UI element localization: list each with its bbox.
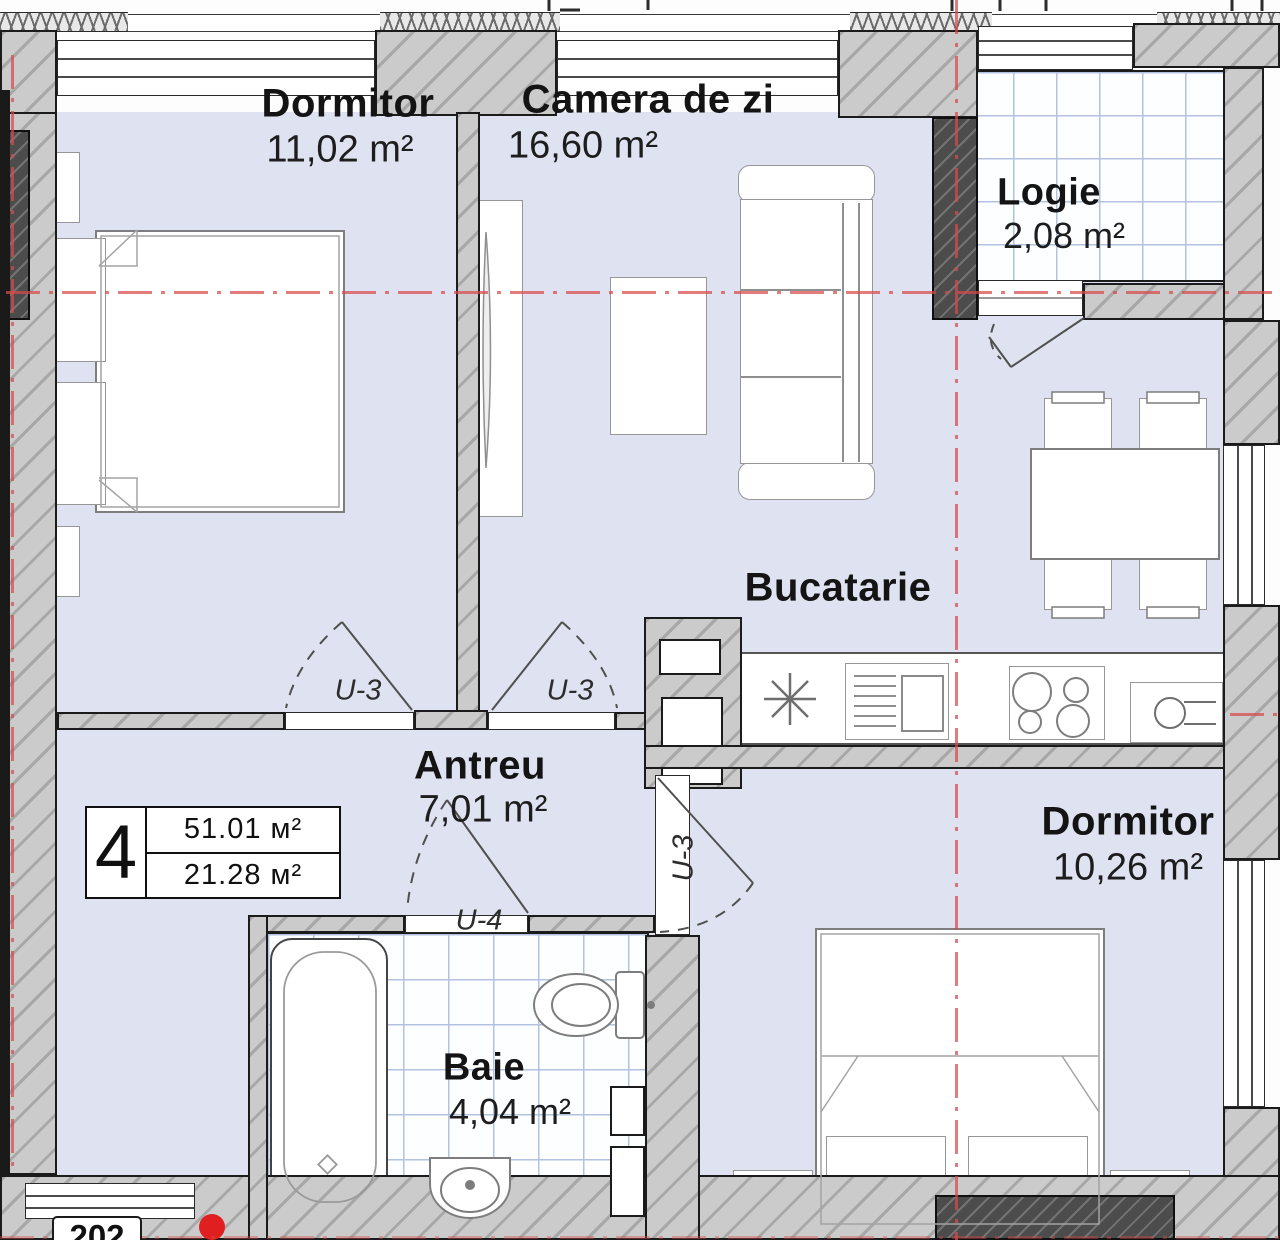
sofa-body: [740, 199, 873, 464]
wall-under-counter: [644, 745, 1225, 769]
wall-partition: [57, 712, 285, 730]
room-label-dormitor1: Dormitor: [262, 82, 435, 127]
cooktop: [1009, 666, 1105, 740]
wall-niche: [610, 1086, 645, 1136]
bathroom-wall: [528, 915, 655, 933]
room-label-baie: Baie: [443, 1047, 525, 1090]
wall-partition: [615, 712, 647, 730]
insulation-hatch: [850, 12, 992, 32]
sink-cabinet: [1130, 682, 1223, 743]
wall-niche: [610, 1146, 645, 1217]
unit-total-area: 51.01 м²: [147, 808, 339, 854]
bed-double-1: [95, 230, 345, 513]
balcony-door-threshold: [978, 280, 1083, 316]
plan-edge: [0, 90, 10, 1240]
window: [1223, 860, 1265, 1107]
floor-plan: Dormitor 11,02 m² Camera de zi 16,60 m² …: [0, 0, 1280, 1240]
wall-exterior-right: [1223, 67, 1264, 320]
chair: [1139, 558, 1207, 610]
shaft-niche: [659, 639, 721, 675]
dining-table: [1030, 448, 1220, 560]
door-label-u3-bedroom2: U-3: [668, 835, 701, 882]
insulation-hatch: [0, 12, 128, 32]
room-label-dormitor2: Dormitor: [1042, 800, 1215, 845]
door-opening-bedroom1: [285, 712, 414, 730]
adjacent-unit-label: 202: [52, 1216, 142, 1240]
wall-partition: [645, 935, 700, 1240]
kitchen-appliance: [845, 663, 949, 740]
unit-number: 4: [87, 808, 145, 897]
sofa-armrest: [738, 462, 875, 500]
chair: [1044, 398, 1112, 450]
insulation-hatch: [380, 12, 560, 32]
room-area-camera: 16,60 m²: [508, 125, 658, 168]
window: [25, 1183, 195, 1219]
loggia-window: [978, 26, 1133, 70]
wall-pier: [1133, 23, 1280, 68]
door-label-u3-bedroom1: U-3: [335, 675, 382, 708]
room-label-logie: Logie: [997, 172, 1101, 215]
wall-pier-dark: [935, 1195, 1175, 1240]
door-label-u3-living: U-3: [547, 675, 594, 708]
room-area-logie: 2,08 m²: [1003, 215, 1125, 257]
room-area-baie: 4,04 m²: [449, 1091, 571, 1133]
wall-pier-dark: [932, 117, 978, 320]
room-label-antreu: Antreu: [414, 744, 546, 789]
room-label-camera: Camera de zi: [522, 78, 775, 123]
coffee-table: [610, 277, 707, 435]
room-area-antreu: 7,01 m²: [419, 789, 548, 832]
chair: [1044, 558, 1112, 610]
tv-cabinet: [477, 200, 523, 517]
sofa-armrest: [738, 165, 875, 203]
window: [1223, 445, 1265, 605]
wall-exterior-right: [1223, 320, 1280, 445]
room-label-bucatarie: Bucatarie: [745, 566, 932, 611]
unit-badge: 4 51.01 м² 21.28 м²: [85, 806, 341, 899]
shaft-niche: [661, 697, 723, 785]
wall-pier: [1083, 283, 1225, 320]
chair: [1139, 398, 1207, 450]
unit-second-area: 21.28 м²: [147, 854, 339, 898]
wall-exterior-right: [1223, 1107, 1280, 1177]
room-area-dormitor1: 11,02 m²: [266, 129, 413, 172]
wall-pier: [838, 30, 978, 118]
door-label-u4-bath: U-4: [456, 905, 503, 938]
wall-exterior-right: [1223, 605, 1280, 860]
cropped-dimension-text: [549, 0, 1262, 11]
bathroom-wall: [248, 915, 268, 1240]
wall-partition: [456, 112, 480, 714]
bathroom-wall: [248, 915, 405, 933]
wall-partition: [414, 710, 488, 730]
door-opening-living: [488, 712, 615, 730]
room-area-dormitor2: 10,26 m²: [1053, 847, 1203, 890]
